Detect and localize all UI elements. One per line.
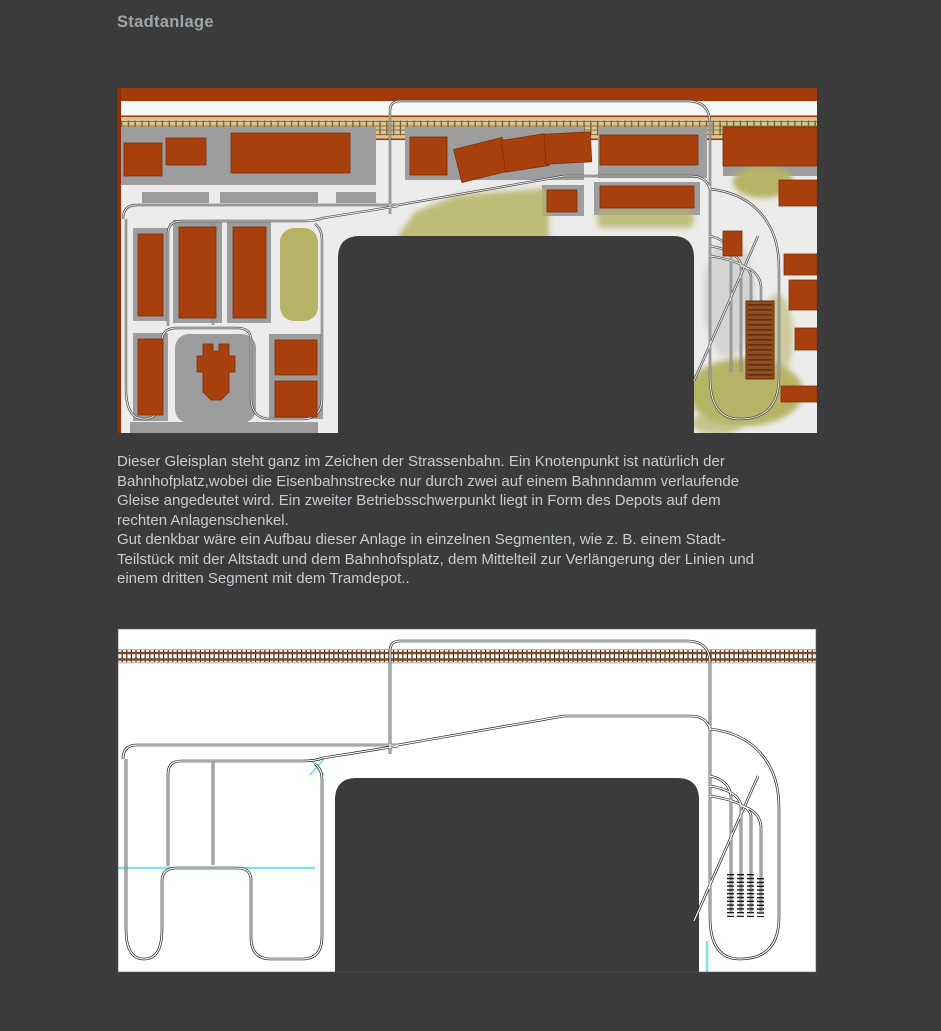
church-building <box>197 344 235 400</box>
left-brick-border <box>117 88 121 433</box>
operator-well-cutout <box>335 778 699 973</box>
operator-well-cutout <box>338 236 694 433</box>
top-brick-band <box>117 88 817 101</box>
colored-track-plan <box>117 88 817 433</box>
line-track-plan <box>117 628 817 973</box>
page: Stadtanlage <box>0 0 941 1031</box>
description-text: Dieser Gleisplan steht ganz im Zeichen d… <box>117 452 837 589</box>
depot-building <box>746 301 774 379</box>
page-title: Stadtanlage <box>117 13 214 32</box>
white-strip <box>117 101 817 116</box>
